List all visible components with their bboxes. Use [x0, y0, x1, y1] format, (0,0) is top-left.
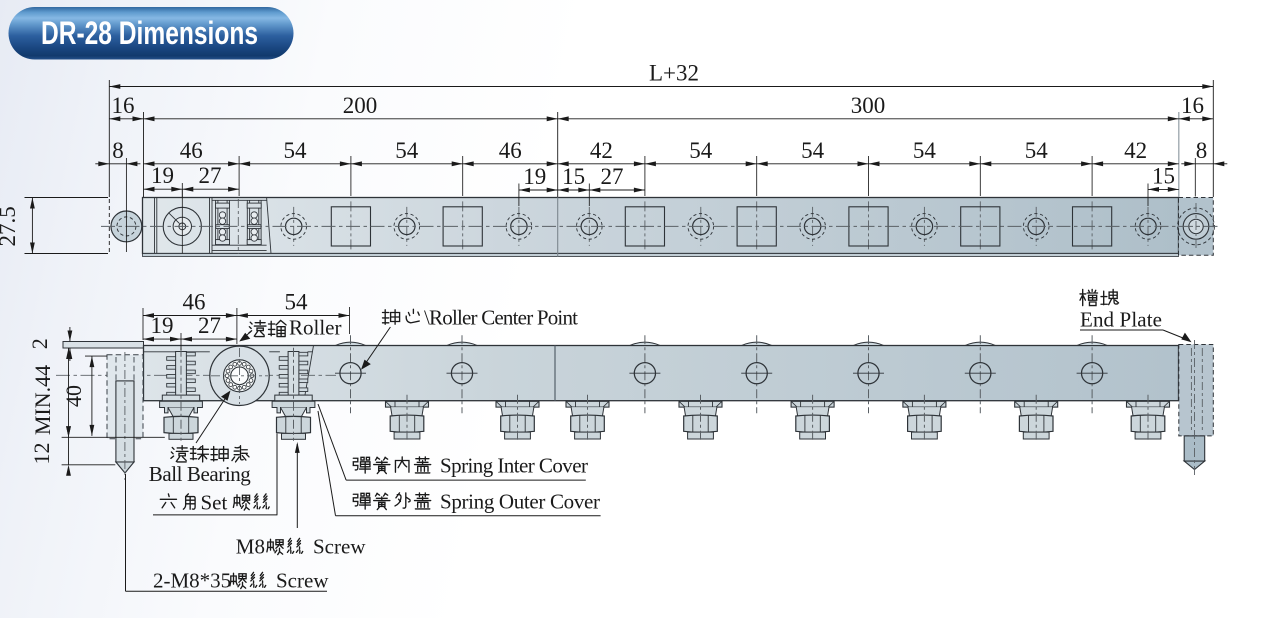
svg-text:Set: Set [201, 491, 228, 515]
svg-text:40: 40 [61, 385, 86, 407]
svg-text:Roller: Roller [289, 316, 342, 340]
svg-text:8: 8 [112, 138, 124, 163]
svg-text:\Roller Center Point: \Roller Center Point [424, 306, 578, 330]
svg-text:42: 42 [590, 138, 613, 163]
svg-text:Screw: Screw [276, 569, 329, 593]
svg-text:19: 19 [151, 313, 174, 338]
svg-text:L+32: L+32 [649, 61, 699, 86]
svg-text:Ball Bearing: Ball Bearing [149, 462, 252, 486]
svg-text:MIN.44: MIN.44 [30, 365, 55, 435]
svg-text:54: 54 [395, 138, 419, 163]
svg-text:M8: M8 [236, 535, 265, 559]
svg-text:54: 54 [689, 138, 713, 163]
svg-text:27: 27 [601, 164, 624, 189]
svg-text:300: 300 [851, 93, 886, 118]
svg-text:27: 27 [198, 313, 221, 338]
svg-text:54: 54 [285, 290, 309, 315]
svg-text:Spring Inter Cover: Spring Inter Cover [440, 454, 588, 478]
svg-text:200: 200 [343, 93, 378, 118]
svg-text:Screw: Screw [313, 535, 366, 559]
svg-text:46: 46 [499, 138, 522, 163]
svg-text:DR-28 Dimensions: DR-28 Dimensions [41, 15, 258, 51]
svg-text:27: 27 [199, 163, 222, 188]
svg-text:46: 46 [180, 138, 203, 163]
svg-text:End Plate: End Plate [1080, 308, 1162, 332]
svg-text:19: 19 [523, 164, 546, 189]
svg-text:16: 16 [1181, 93, 1204, 118]
svg-text:54: 54 [1025, 138, 1049, 163]
svg-text:8: 8 [1196, 138, 1208, 163]
svg-text:16: 16 [112, 93, 135, 118]
svg-text:46: 46 [183, 290, 206, 315]
svg-text:54: 54 [913, 138, 937, 163]
svg-text:27.5: 27.5 [0, 206, 20, 246]
svg-text:42: 42 [1124, 138, 1147, 163]
svg-text:19: 19 [151, 163, 174, 188]
svg-text:2-M8*35: 2-M8*35 [153, 569, 231, 593]
svg-text:2: 2 [27, 338, 52, 349]
svg-text:54: 54 [801, 138, 825, 163]
svg-text:15: 15 [562, 164, 585, 189]
svg-text:12: 12 [29, 443, 54, 465]
svg-text:54: 54 [284, 138, 308, 163]
svg-text:Spring Outer Cover: Spring Outer Cover [440, 490, 600, 514]
svg-text:15: 15 [1152, 163, 1175, 188]
